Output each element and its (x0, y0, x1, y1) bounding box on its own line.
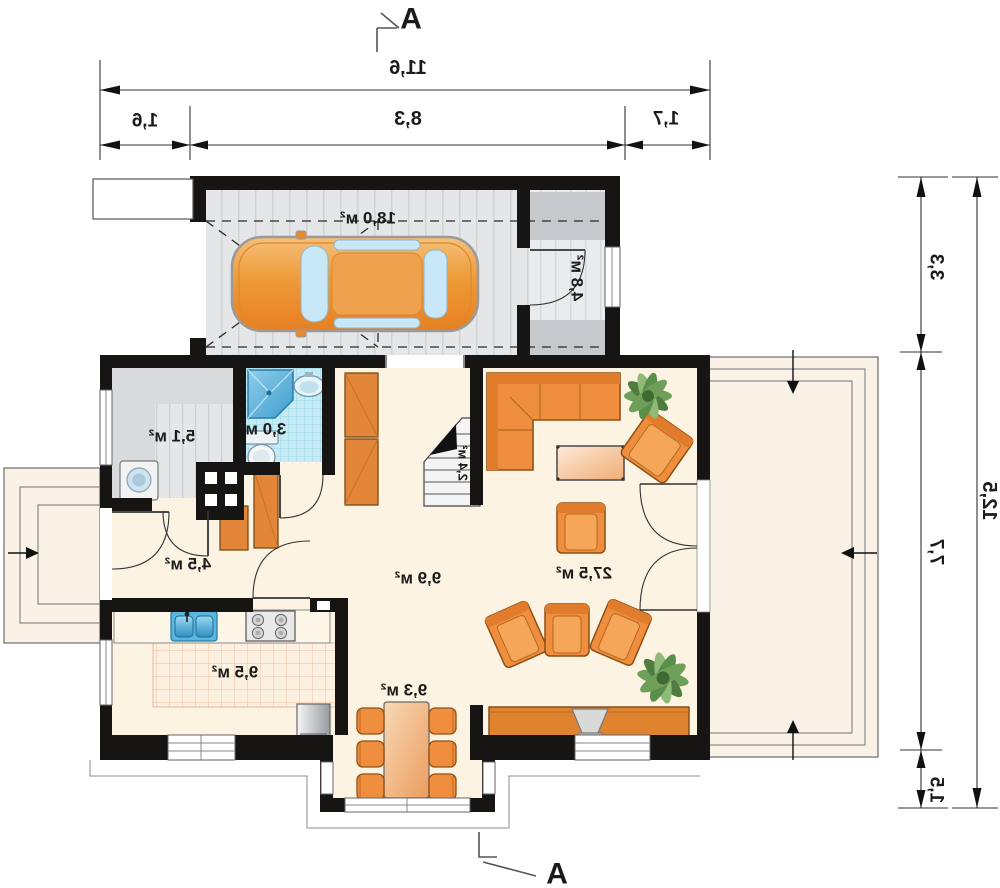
kitchen-pass-through (317, 601, 330, 610)
kitchen-area-label: 9,5 м² (211, 663, 258, 682)
car-mirror-left (296, 231, 306, 239)
bay-side-window-left (321, 762, 333, 794)
stove (246, 611, 295, 641)
dining-table (384, 702, 429, 798)
dim-width-total: 11,6 (389, 57, 427, 79)
section-marker-bottom: A (479, 832, 568, 888)
car-side-window-bottom (334, 318, 420, 328)
car-rear-window (424, 250, 447, 318)
dim-height-bay: 1,5 (926, 776, 947, 803)
kitchen-counter (114, 610, 330, 643)
dining-area-label: 9,3 м² (380, 681, 427, 700)
section-label-bottom: A (546, 858, 568, 888)
car-windshield (301, 246, 328, 322)
hall-garage-opening (385, 355, 465, 368)
storage-area-label: 4,8 м² (568, 254, 587, 301)
car (232, 231, 478, 337)
floor-plan-page: 18,0 м² 4,8 м² 5,1 м² 3,0 м² 4,5 м² 9,9 … (0, 0, 1000, 888)
car-mirror-right (296, 329, 306, 337)
dimension-right-labels: 3,3 7,7 1,5 12,5 (926, 254, 1000, 803)
dim-width-left: 1,6 (132, 111, 158, 132)
dim-width-center: 8,3 (394, 108, 422, 130)
tv-chair-middle (545, 604, 589, 656)
armchair-center (557, 503, 605, 553)
car-roof (332, 253, 422, 315)
hall-area-label: 9,9 м² (394, 569, 441, 588)
storage-shelf-top (530, 192, 605, 240)
dim-width-right: 1,7 (653, 109, 679, 130)
dimension-top-labels: 11,6 1,6 8,3 1,7 (132, 57, 679, 132)
floor-plan-drawing: 18,0 м² 4,8 м² 5,1 м² 3,0 м² 4,5 м² 9,9 … (0, 0, 1000, 888)
car-side-window-top (334, 240, 420, 250)
bay-side-window-right (483, 762, 495, 794)
dining-set (357, 702, 456, 800)
coffee-table (556, 445, 624, 480)
terrace (700, 350, 878, 760)
garage-area-label: 18,0 м² (340, 209, 396, 228)
bathroom-area-label: 3,0 м² (239, 420, 286, 439)
dim-height-main: 7,7 (926, 539, 947, 565)
entrance-porch (4, 468, 100, 643)
stairs-area-label: 2,4 м² (456, 445, 471, 481)
hallway-area-label: 4,5 м² (164, 555, 211, 574)
chimney-block (196, 462, 244, 520)
utility-area-label: 5,1 м² (148, 427, 195, 446)
dim-height-garage: 3,3 (926, 254, 947, 280)
section-label-top: A (400, 3, 422, 36)
tv-sideboard (489, 707, 689, 738)
kitchen-sink (171, 611, 217, 641)
living-window (575, 735, 650, 760)
section-marker-top: A (377, 3, 422, 53)
garage-canopy (93, 179, 193, 219)
fridge (297, 704, 330, 737)
terrace-door-opening (697, 480, 710, 612)
storage-shelf-bottom (530, 320, 605, 355)
dim-height-total: 12,5 (978, 482, 1000, 521)
entrance-door-opening (100, 508, 112, 600)
living-area-label: 27,5 м² (556, 564, 612, 583)
washing-machine (120, 461, 158, 500)
